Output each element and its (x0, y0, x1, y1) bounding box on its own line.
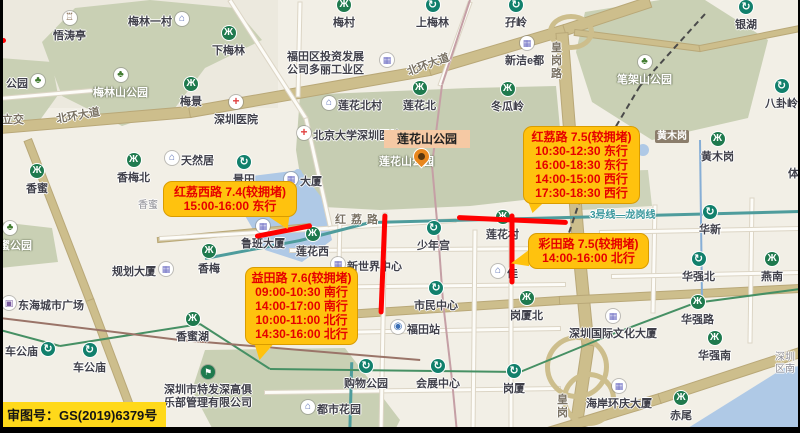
callout-title: 红荔路 7.5(较拥堵) (528, 130, 635, 144)
mtr-icon: ↻ (775, 79, 789, 93)
map-label: 市民中心 (414, 297, 458, 313)
map-label: 华强北 (682, 268, 715, 284)
hosp-icon: + (229, 95, 243, 109)
bag-icon: ▣ (2, 296, 16, 310)
szmt-icon: Ж (520, 291, 534, 305)
callout-title: 红荔西路 7.4(较拥堵) (168, 185, 292, 199)
mtr-icon: ↻ (739, 0, 753, 14)
callout-line: 10:00-11:00 北行 (250, 313, 353, 327)
golf-icon: ⚑ (201, 365, 215, 379)
map-label: 皇岗 (557, 394, 570, 420)
map-label: 香蜜公园 (0, 237, 32, 253)
mtr-icon: ↻ (426, 0, 440, 12)
map-label: 立交 (2, 111, 24, 127)
szmt-icon: Ж (186, 312, 200, 326)
szmt-icon: Ж (708, 331, 722, 345)
terrain-layer (0, 0, 800, 433)
mtr-icon: ↻ (692, 252, 706, 266)
mtr-icon: ↻ (429, 281, 443, 295)
map-label: 公园 (6, 75, 28, 91)
map-label: 天然居 (181, 152, 214, 168)
mtr-icon: ↻ (703, 205, 717, 219)
map-label: 3号线—龙岗线 (590, 206, 656, 221)
border-bottom (0, 427, 800, 433)
szmt-icon: Ж (127, 153, 141, 167)
building-icon: ▦ (380, 53, 394, 67)
tree-icon: ♣ (31, 74, 45, 88)
house-icon: ⌂ (301, 400, 315, 414)
hosp-icon: + (297, 126, 311, 140)
mtr-icon: ↻ (359, 359, 373, 373)
building-icon: ▦ (520, 36, 534, 50)
map-label: 黄木岗 (655, 130, 689, 143)
mtr-icon: ↻ (431, 359, 445, 373)
map-label: 区南 (775, 360, 795, 375)
map-label: 会展中心 (416, 375, 460, 391)
mtr-icon: ↻ (427, 221, 441, 235)
pavilion-icon: ♖ (63, 11, 77, 25)
map-label: 购物公园 (344, 375, 388, 391)
map-label: 东海城市广场 (18, 297, 84, 313)
map-label: 银湖 (735, 16, 757, 32)
building-icon: ▦ (612, 379, 626, 393)
map-label: 规划大厦 (112, 263, 156, 279)
szmt-icon: Ж (691, 295, 705, 309)
szmt-icon: Ж (306, 227, 320, 241)
house-icon: ⌂ (175, 12, 189, 26)
map-label: 梅景 (180, 93, 202, 109)
map-label: 新洁e都 (505, 52, 544, 68)
map-label: 皇岗路 (551, 42, 564, 81)
map-label: 大厦 (300, 173, 322, 189)
callout-title: 彩田路 7.5(较拥堵) (533, 237, 644, 251)
callout-line: 15:00-16:00 东行 (168, 199, 292, 213)
szmt-icon: Ж (501, 82, 515, 96)
map-label: 车公庙 (5, 343, 38, 359)
map-label: 香蜜 (138, 196, 158, 211)
map-label: 车公庙 (73, 359, 106, 375)
map-label: 梅林一村 (128, 13, 172, 29)
szmt-icon: Ж (711, 132, 725, 146)
map-label: 海岸环庆大厦 (586, 395, 652, 411)
map-label: 公司多丽工业区 (287, 61, 364, 77)
callout-title: 益田路 7.6(较拥堵) (250, 271, 353, 285)
building-icon: ▦ (606, 309, 620, 323)
map-label: 华强南 (698, 347, 731, 363)
map-label: 孖岭 (505, 14, 527, 30)
callout-line: 17:30-18:30 西行 (528, 186, 635, 200)
callout-line: 14:30-16:00 北行 (250, 327, 353, 341)
map-label: 燕南 (761, 268, 783, 284)
szmt-icon: Ж (184, 77, 198, 91)
map-label: 下梅林 (212, 42, 245, 58)
map-approval-number: 审图号：GS(2019)6379号 (0, 402, 166, 428)
callout-line: 16:00-18:30 东行 (528, 158, 635, 172)
house-icon: ⌂ (491, 264, 505, 278)
map-label: 香蜜湖 (176, 328, 209, 344)
map-label: 香梅 (198, 260, 220, 276)
mtr-icon: ↻ (83, 343, 97, 357)
szmt-icon: Ж (222, 26, 236, 40)
callout-line: 10:30-12:30 东行 (528, 144, 635, 158)
szmt-icon: Ж (30, 164, 44, 178)
map-label: 岗厦北 (510, 307, 543, 323)
tree-icon: ♣ (638, 55, 652, 69)
tree-icon: ♣ (3, 221, 17, 235)
szmt-icon: Ж (765, 252, 779, 266)
map-label: 深圳医院 (214, 111, 258, 127)
map-label: 香蜜 (26, 180, 48, 196)
map-label: 华强路 (681, 311, 714, 327)
callout-line: 09:00-10:30 南行 (250, 285, 353, 299)
map-label: 冬瓜岭 (491, 98, 524, 114)
map-label: 福田站 (407, 321, 440, 337)
congestion-callout: 彩田路 7.5(较拥堵)14:00-16:00 北行 (528, 233, 649, 269)
house-icon: ⌂ (165, 151, 179, 165)
map-label: 少年宫 (417, 237, 450, 253)
szmt-icon: Ж (413, 81, 427, 95)
border-left (0, 0, 3, 433)
map-label: 上梅林 (416, 14, 449, 30)
map-label: 岗厦 (503, 380, 525, 396)
map-label: 香梅北 (117, 169, 150, 185)
map-label: 华新 (699, 221, 721, 237)
map-label: 莲花北村 (338, 97, 382, 113)
callout-line: 14:00-16:00 北行 (533, 251, 644, 265)
congestion-line (510, 213, 515, 284)
map-label: 赤尾 (670, 407, 692, 423)
map-label: 深圳国际文化大厦 (569, 325, 657, 341)
map-label: 梅村 (333, 14, 355, 30)
map-label: 黄木岗 (701, 148, 734, 164)
map-label: 八卦岭 (765, 95, 798, 111)
map-label: 莲花西 (296, 243, 329, 259)
mtr-icon: ↻ (41, 342, 55, 356)
map-label: 红荔路 (335, 211, 383, 227)
park-highlight-label: 莲花山公园 (384, 130, 470, 148)
callout-line: 14:00-15:00 西行 (528, 172, 635, 186)
congestion-callout: 益田路 7.6(较拥堵)09:00-10:30 南行14:00-17:00 南行… (245, 267, 358, 345)
map-label: 梅林山公园 (93, 84, 148, 100)
szmt-icon: Ж (202, 244, 216, 258)
map-label: 悟涛亭 (53, 27, 86, 43)
tree-icon: ♣ (114, 68, 128, 82)
mtr-icon: ↻ (237, 155, 251, 169)
mtr-icon: ↻ (507, 364, 521, 378)
map-label: 乐部管理有限公司 (164, 394, 252, 410)
map-canvas[interactable]: 悟涛亭♖梅林一村⌂下梅林Ж梅村Ж上梅林↻孖岭↻银湖↻福田区投资发展公司多丽工业区… (0, 0, 800, 433)
house-icon: ⌂ (322, 96, 336, 110)
szmt-icon: Ж (674, 391, 688, 405)
callout-line: 14:00-17:00 南行 (250, 299, 353, 313)
congestion-callout: 红荔西路 7.4(较拥堵)15:00-16:00 东行 (163, 181, 297, 217)
rail-icon: ◉ (391, 320, 405, 334)
building-icon: ▦ (159, 262, 173, 276)
map-label: 莲花北 (403, 97, 436, 113)
congestion-callout: 红荔路 7.5(较拥堵)10:30-12:30 东行16:00-18:30 东行… (523, 126, 640, 204)
map-label: 笔架山公园 (617, 71, 672, 87)
map-label: 都市花园 (317, 401, 361, 417)
